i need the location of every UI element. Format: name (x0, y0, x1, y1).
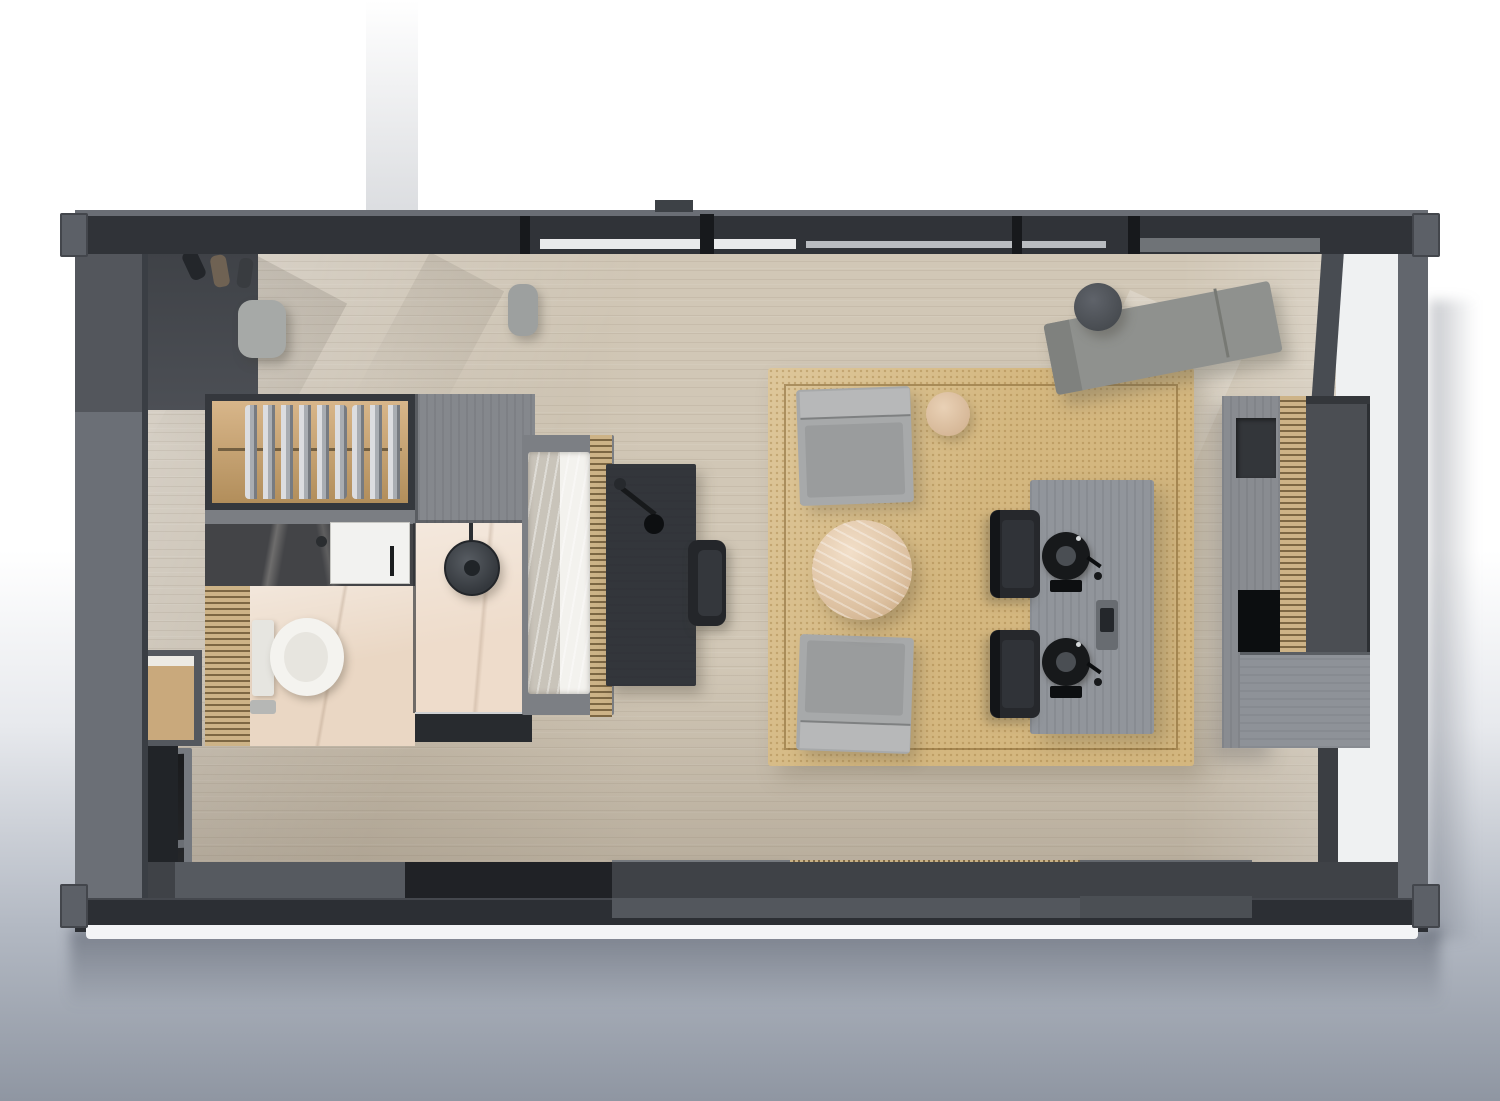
storage-bench-right-overlay (1080, 896, 1252, 918)
desk-lamp-head (644, 514, 664, 534)
window-mullion (520, 216, 530, 254)
backdrop-light-streak (366, 0, 418, 212)
roof-tab (655, 200, 693, 212)
napkin-bar (1050, 580, 1082, 592)
window-mullion (1012, 216, 1022, 254)
bottom-outer-face (86, 925, 1418, 939)
vanity-sink (330, 522, 410, 584)
floor-plan-scene (0, 0, 1500, 1101)
kitchen-upper-opening (1236, 418, 1276, 478)
side-table (926, 392, 970, 436)
right-wall (1398, 210, 1428, 932)
faucet-icon (316, 536, 327, 547)
coffee-table (812, 520, 912, 620)
building-side-shadow (1430, 300, 1476, 940)
dining-chair-bottom-seat (1002, 640, 1034, 708)
hanging-clothes-group (245, 405, 347, 499)
bottom-mat-segment-dark (405, 862, 612, 898)
dining-chair-bottom-back (990, 630, 1000, 718)
kitchen-lower-opening (1238, 590, 1282, 652)
corner-casting-bottom-right (1412, 884, 1440, 928)
corner-casting-top-right (1412, 213, 1440, 257)
kitchen-lower-cabinet (1240, 652, 1370, 748)
entry-stool (238, 300, 286, 358)
lounge-chair-bottom-backrest (800, 720, 911, 752)
dining-chair-top-back (990, 510, 1000, 598)
dining-chair-top-seat (1002, 520, 1034, 588)
window-seat-pad (508, 284, 538, 336)
corner-casting-bottom-left (60, 884, 88, 928)
building-cast-shadow (70, 928, 1440, 1014)
place-setting-bowl (1056, 546, 1076, 566)
desk-lamp-base (614, 478, 626, 490)
shower-threshold (415, 712, 532, 742)
plate-glint (1076, 642, 1081, 647)
window-mullion (700, 214, 714, 254)
lounge-chair-top-backrest (800, 388, 911, 420)
hanging-clothes-group (352, 405, 406, 499)
dining-table (1030, 480, 1154, 734)
lounge-chair-top-seat (805, 422, 905, 497)
napkin-bar (1050, 686, 1082, 698)
floor-drain (250, 700, 276, 714)
kitchen-counter-cap (1306, 396, 1370, 404)
storage-bench-front-overlay (612, 898, 1080, 918)
desk (606, 464, 696, 686)
wardrobe-block (415, 394, 535, 523)
serving-tray-item (1100, 608, 1114, 632)
double-bed-mattress (528, 452, 590, 694)
sink-drain-slot (390, 546, 394, 576)
corner-casting-top-left (60, 213, 88, 257)
shower-head-center (464, 560, 480, 576)
window-mullion (1128, 216, 1140, 254)
window-sill-faint (806, 241, 1106, 248)
top-wall-inner-ledge (1140, 238, 1320, 252)
left-wall-entry-shade (75, 252, 142, 412)
window-sill (540, 239, 796, 249)
bottom-mat-segment-light (175, 862, 405, 898)
cutlery-dot (1094, 678, 1102, 686)
slat-wall (205, 586, 250, 746)
plate-glint (1076, 536, 1081, 541)
cutlery-dot (1094, 572, 1102, 580)
shower-glass-divider (413, 523, 416, 713)
place-setting-bowl (1056, 652, 1076, 672)
round-stool (1074, 283, 1122, 331)
lounge-chair-bottom-seat (805, 640, 905, 715)
desk-chair-seat (698, 550, 722, 616)
toilet-seat-inner (284, 632, 328, 682)
